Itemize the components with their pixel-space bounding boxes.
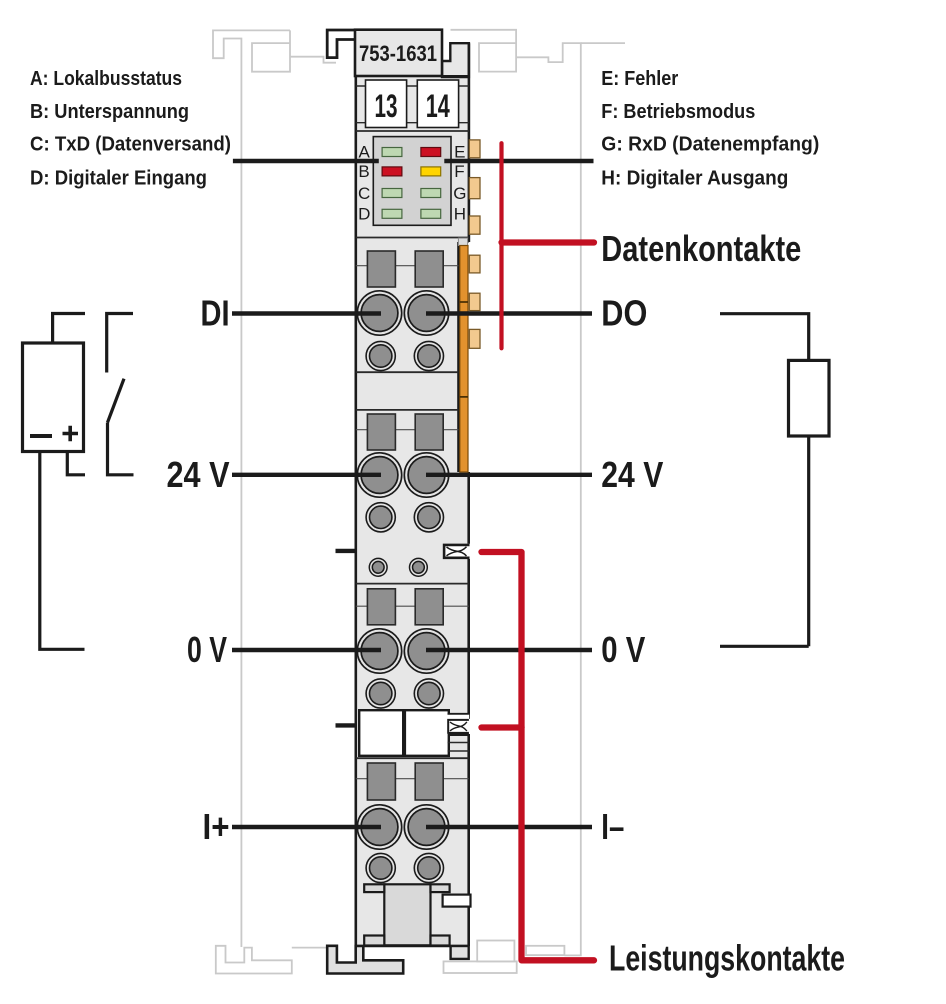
svg-text:Datenkontakte: Datenkontakte: [601, 228, 801, 269]
svg-text:753-1631: 753-1631: [359, 41, 437, 66]
svg-text:G: G: [453, 184, 466, 203]
svg-text:0 V: 0 V: [187, 629, 227, 670]
svg-text:DI: DI: [201, 293, 230, 334]
svg-text:H: Digitaler Ausgang: H: Digitaler Ausgang: [601, 167, 788, 189]
svg-text:A: Lokalbusstatus: A: Lokalbusstatus: [30, 68, 182, 90]
svg-text:F: F: [454, 162, 464, 181]
svg-text:A: A: [359, 142, 371, 161]
svg-text:DO: DO: [601, 293, 647, 334]
svg-text:E: E: [454, 142, 465, 161]
svg-text:E: Fehler: E: Fehler: [601, 68, 678, 90]
svg-text:D: D: [358, 205, 370, 224]
svg-text:C: C: [358, 184, 370, 203]
svg-text:B: Unterspannung: B: Unterspannung: [30, 101, 189, 123]
svg-text:B: B: [358, 162, 369, 181]
svg-text:14: 14: [426, 88, 450, 124]
svg-text:G: RxD (Datenempfang): G: RxD (Datenempfang): [601, 134, 819, 156]
svg-text:0 V: 0 V: [601, 629, 645, 670]
svg-text:F: Betriebsmodus: F: Betriebsmodus: [601, 101, 755, 123]
svg-text:24 V: 24 V: [167, 454, 230, 495]
svg-text:24 V: 24 V: [601, 454, 663, 495]
svg-text:D: Digitaler Eingang: D: Digitaler Eingang: [30, 167, 207, 189]
svg-text:C: TxD (Datenversand): C: TxD (Datenversand): [30, 134, 231, 156]
svg-text:I+: I+: [203, 806, 230, 847]
svg-text:H: H: [454, 205, 466, 224]
svg-text:Leistungskontakte: Leistungskontakte: [609, 938, 845, 979]
svg-text:13: 13: [375, 88, 398, 124]
svg-text:I–: I–: [601, 806, 624, 847]
